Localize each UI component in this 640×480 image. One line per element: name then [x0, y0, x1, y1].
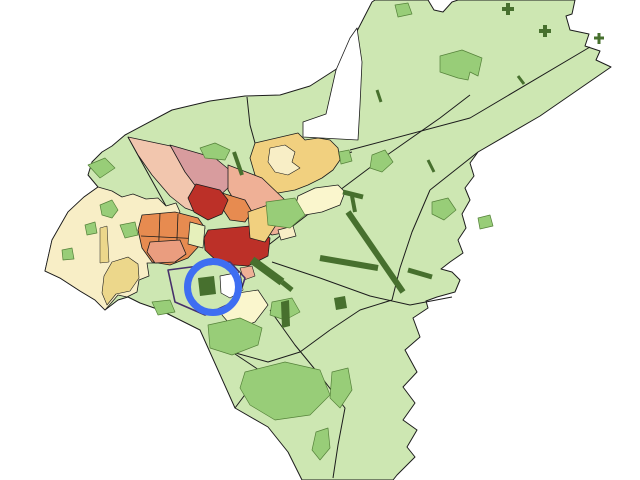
district-layer	[45, 0, 611, 480]
green-patch-right	[478, 215, 493, 229]
darkgreen-square-center	[198, 276, 216, 296]
white-notch-north	[303, 28, 362, 140]
green-patch-nw-4	[62, 248, 74, 260]
map-figure	[0, 0, 640, 480]
darkgreen-rect-south	[281, 300, 290, 328]
district-lime-west	[188, 222, 205, 248]
map-canvas[interactable]	[0, 0, 640, 480]
darkgreen-blob-south	[334, 296, 347, 310]
